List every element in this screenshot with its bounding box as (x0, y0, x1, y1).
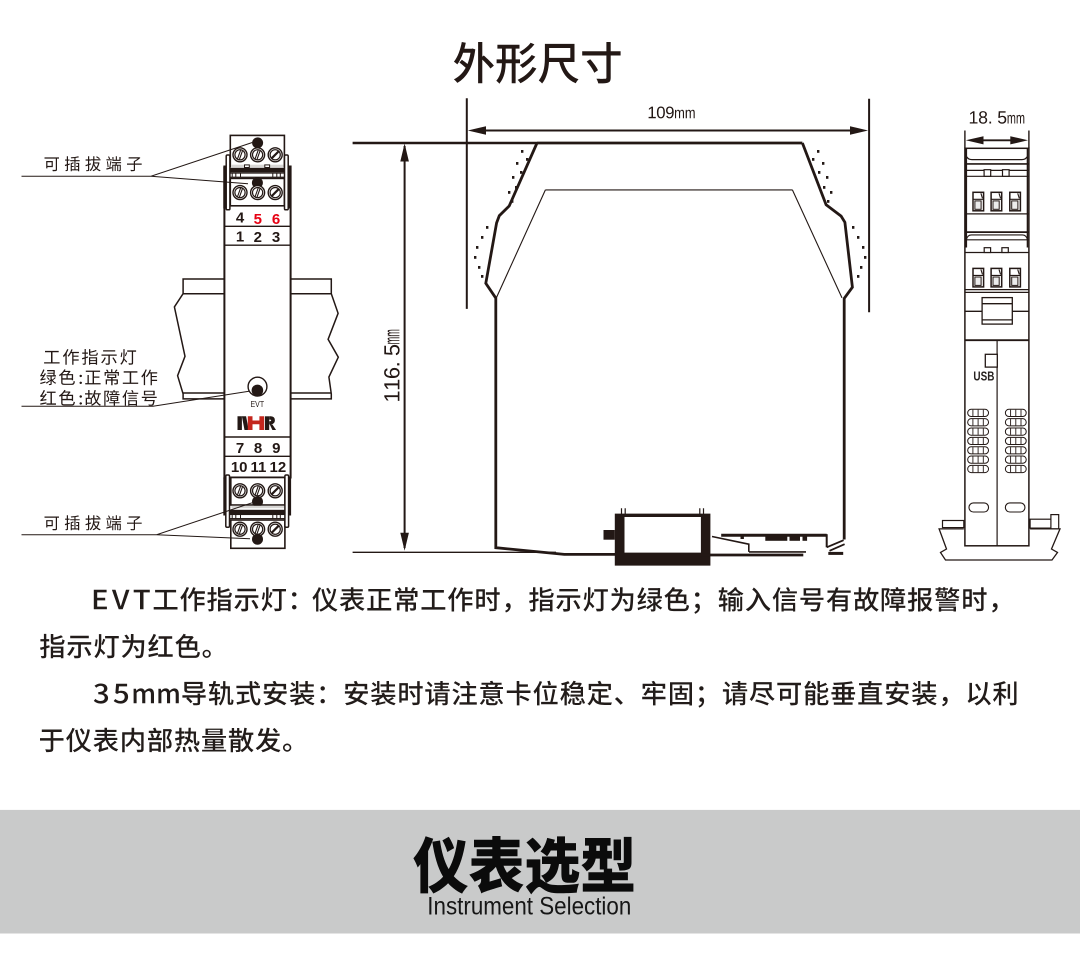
svg-text:3: 3 (272, 229, 280, 246)
svg-text:1: 1 (236, 229, 244, 246)
svg-text:EVT: EVT (251, 399, 265, 409)
svg-text:4: 4 (236, 210, 245, 227)
svg-text:11: 11 (250, 459, 266, 476)
svg-text:6: 6 (272, 211, 280, 228)
svg-text:10: 10 (231, 459, 248, 476)
svg-text:5: 5 (254, 211, 262, 228)
svg-text:9: 9 (272, 440, 280, 457)
svg-text:2: 2 (254, 229, 262, 246)
svg-text:12: 12 (270, 459, 287, 476)
svg-text:8: 8 (254, 440, 262, 457)
svg-text:7: 7 (236, 440, 244, 457)
svg-text:USB: USB (973, 369, 994, 383)
svg-text:Instrument Selection: Instrument Selection (427, 893, 631, 921)
